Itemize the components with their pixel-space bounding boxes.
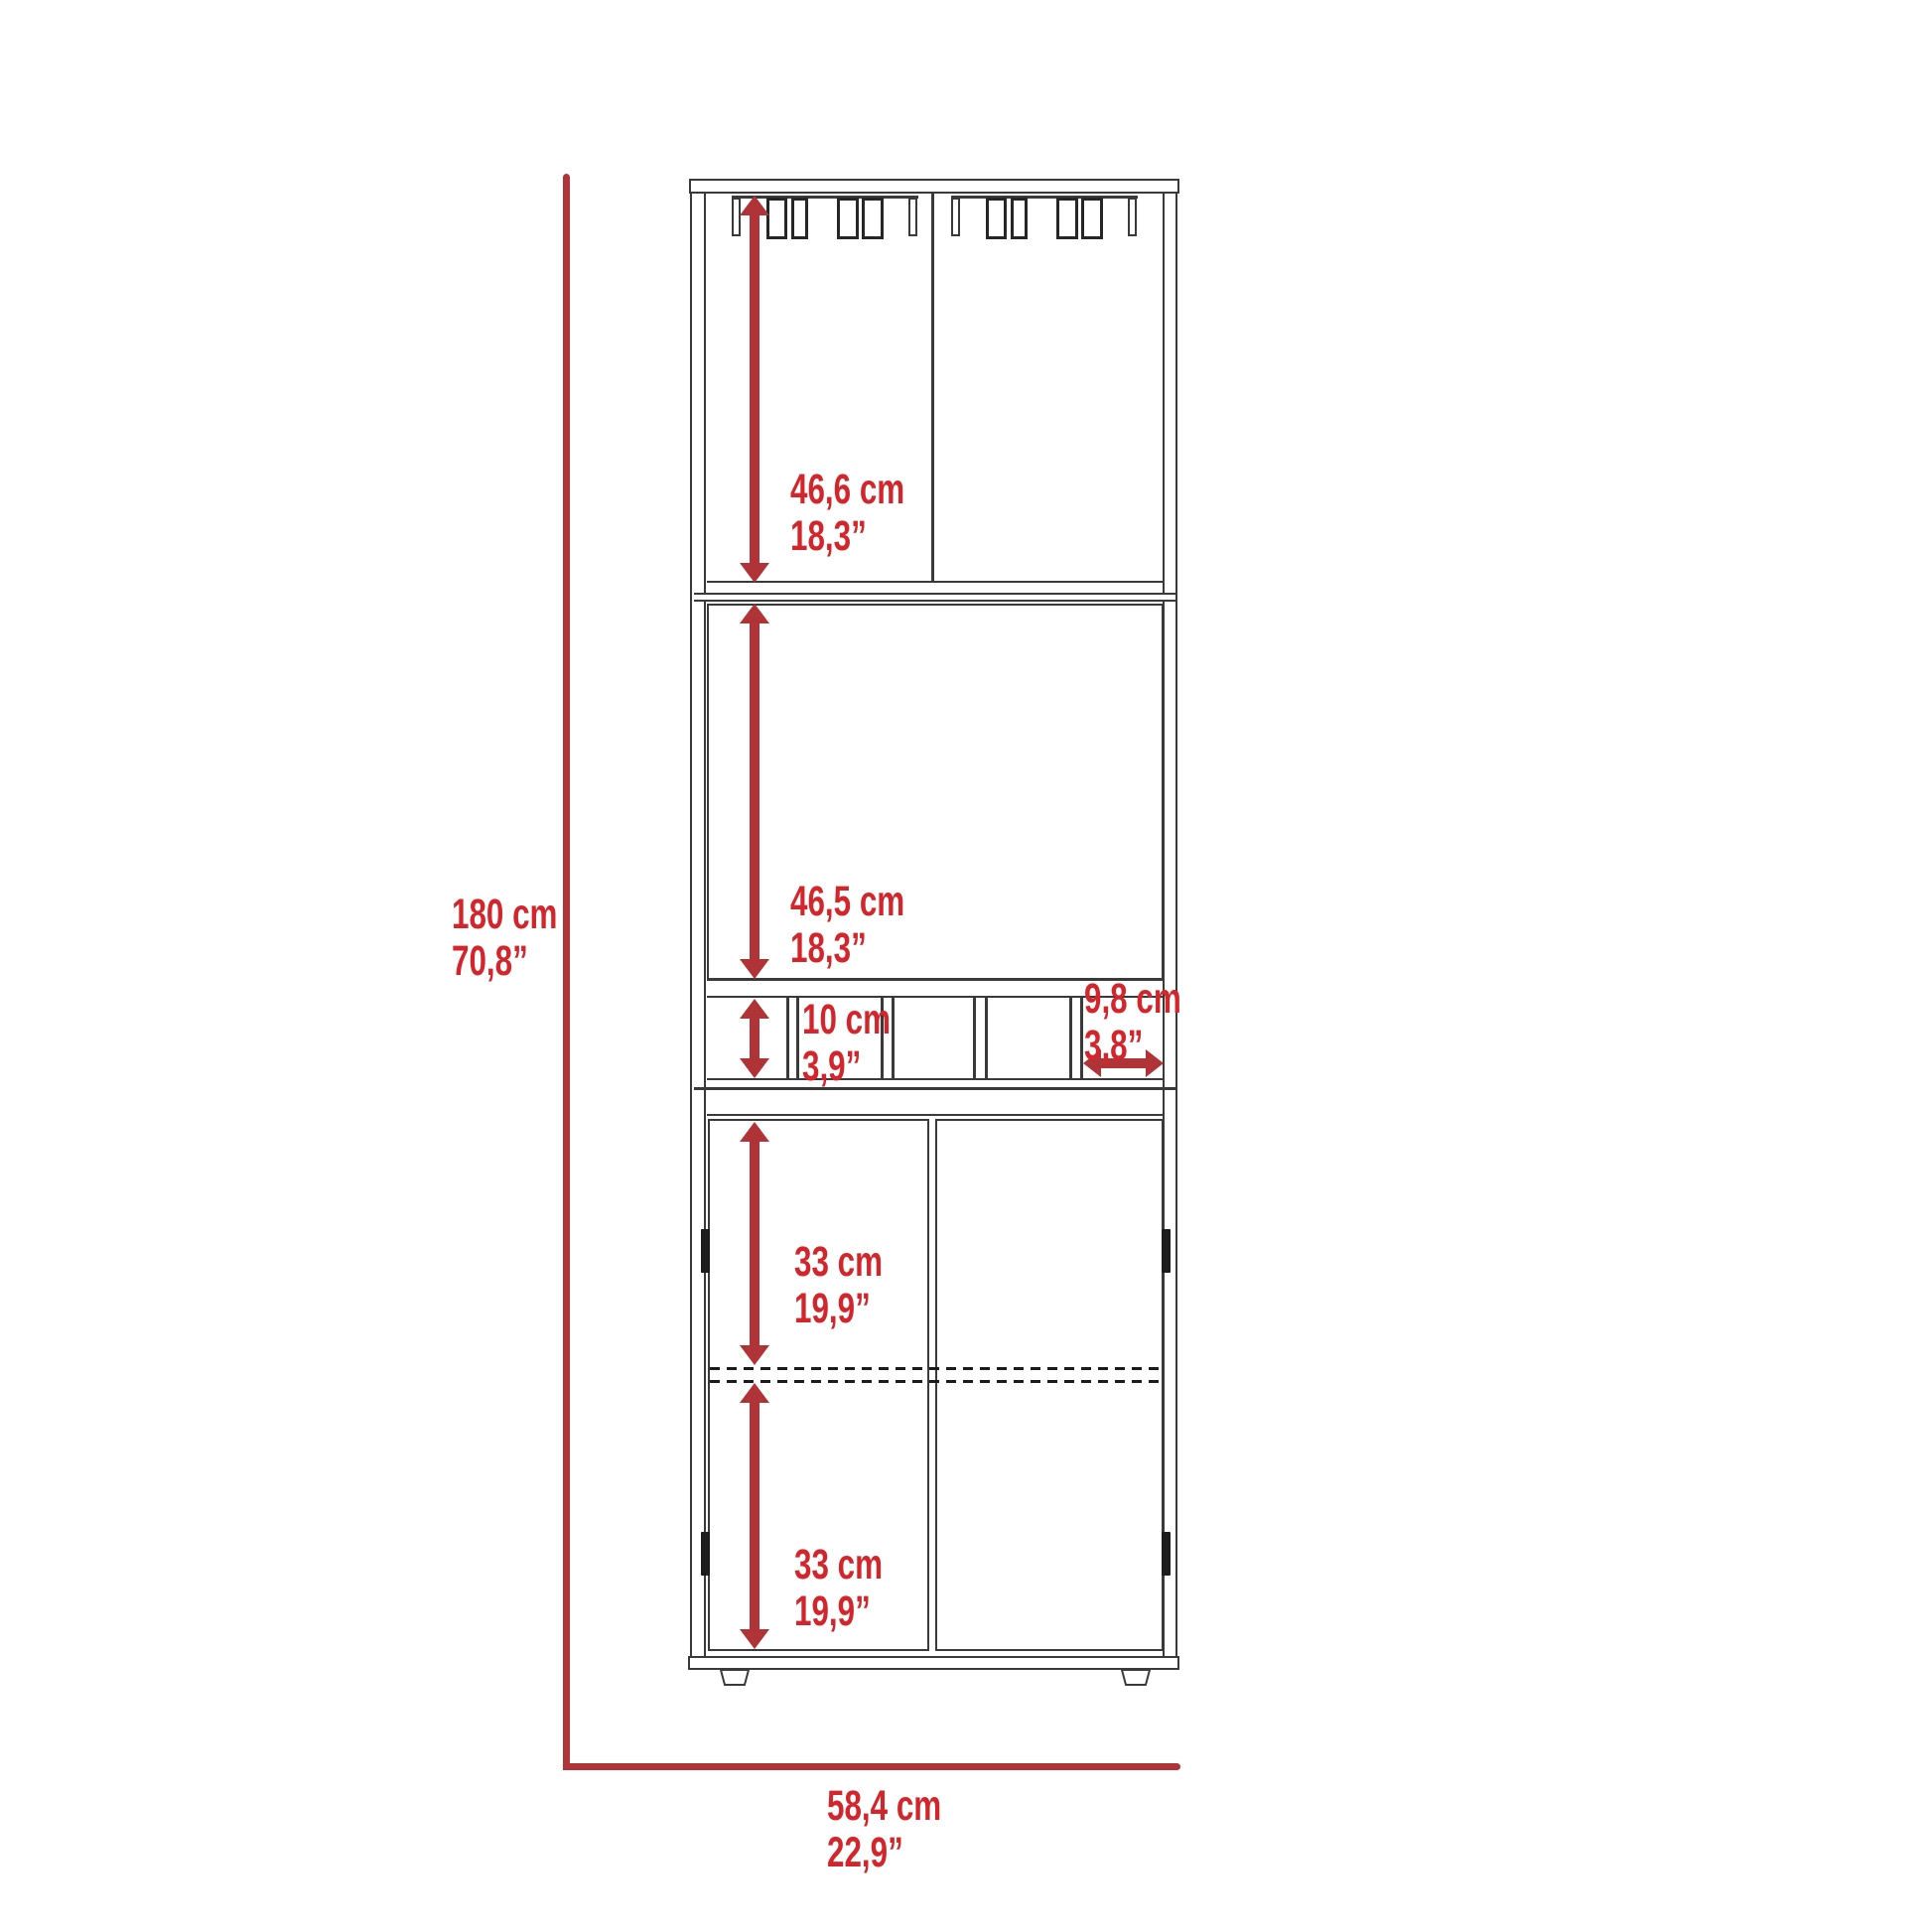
door-top-line — [707, 1114, 1164, 1116]
cubby-divider — [973, 996, 976, 1080]
stemware-slat — [1011, 198, 1028, 239]
stemware-slat — [1056, 198, 1078, 239]
internal-shelf-dashed-line — [710, 1380, 1162, 1383]
cubby-divider — [985, 996, 988, 1080]
cubby-height-in: 3,9” — [802, 1043, 891, 1090]
cubby-width-cm: 9,8 cm — [1084, 976, 1181, 1023]
internal-shelf-dashed-line — [710, 1367, 1162, 1370]
right-wall-outer-line — [1175, 193, 1177, 1656]
cubby-height-cm: 10 cm — [802, 997, 891, 1043]
overall-width-cm: 58,4 cm — [827, 1783, 941, 1830]
cubby-divider — [786, 996, 789, 1080]
open-shelf-section-label: 46,5 cm 18,3” — [790, 879, 904, 972]
stemware-slat — [951, 198, 960, 236]
door-hinge — [1162, 1229, 1171, 1273]
stemware-slat — [1081, 198, 1103, 239]
cubby-divider — [796, 996, 799, 1080]
cabinet-base-plinth — [688, 1656, 1179, 1670]
glass-rack-section-in: 18,3” — [790, 513, 904, 560]
open-shelf-section-in: 18,3” — [790, 925, 904, 972]
overall-width-line — [563, 1763, 1180, 1770]
upper-door-section-label: 33 cm 19,9” — [794, 1239, 883, 1332]
right-door — [935, 1119, 1164, 1651]
fixed-shelf-band — [694, 593, 1175, 602]
overall-height-line — [563, 174, 570, 1770]
open-shelf-section-cm: 46,5 cm — [790, 879, 904, 925]
stemware-slat — [766, 198, 787, 239]
lower-door-section-label: 33 cm 19,9” — [794, 1542, 883, 1635]
left-wall-inner-line — [704, 193, 706, 1656]
door-hinge — [701, 1229, 710, 1273]
bar-cabinet-dimension-diagram: 180 cm 70,8” 58,4 cm 22,9” 46,6 cm 18,3”… — [0, 0, 1932, 1932]
stemware-slat — [908, 198, 917, 236]
open-shelf-compartment — [707, 604, 1164, 981]
stemware-slat — [1128, 198, 1137, 236]
overall-width-in: 22,9” — [827, 1830, 941, 1876]
cubby-width-label: 9,8 cm 3,8” — [1084, 976, 1181, 1069]
cubby-divider — [1069, 996, 1072, 1080]
overall-height-label: 180 cm 70,8” — [452, 892, 557, 985]
cubby-height-label: 10 cm 3,9” — [802, 997, 891, 1090]
left-foot — [720, 1669, 750, 1687]
stemware-slat — [791, 198, 808, 239]
lower-door-section-in: 19,9” — [794, 1588, 883, 1635]
overall-height-in: 70,8” — [452, 938, 557, 985]
stemware-slat — [837, 198, 859, 239]
glass-rack-bottom-line — [707, 581, 1164, 583]
stemware-slat — [986, 198, 1007, 239]
stemware-rail-right — [951, 196, 1138, 199]
cubby-bottom-shelf-line — [694, 1087, 1175, 1090]
cubby-divider — [892, 996, 895, 1080]
glass-rack-section-cm: 46,6 cm — [790, 467, 904, 513]
door-hinge — [701, 1532, 710, 1576]
cabinet-top-panel — [689, 179, 1179, 194]
left-wall-outer-line — [690, 193, 692, 1656]
door-hinge — [1162, 1532, 1171, 1576]
glass-rack-center-divider — [931, 193, 934, 583]
glass-rack-section-label: 46,6 cm 18,3” — [790, 467, 904, 560]
overall-width-label: 58,4 cm 22,9” — [827, 1783, 941, 1876]
upper-door-section-in: 19,9” — [794, 1286, 883, 1332]
cubby-width-in: 3,8” — [1084, 1023, 1181, 1069]
upper-door-section-cm: 33 cm — [794, 1239, 883, 1286]
right-foot — [1121, 1669, 1151, 1687]
stemware-slat — [862, 198, 884, 239]
overall-height-cm: 180 cm — [452, 892, 557, 938]
lower-door-section-cm: 33 cm — [794, 1542, 883, 1588]
